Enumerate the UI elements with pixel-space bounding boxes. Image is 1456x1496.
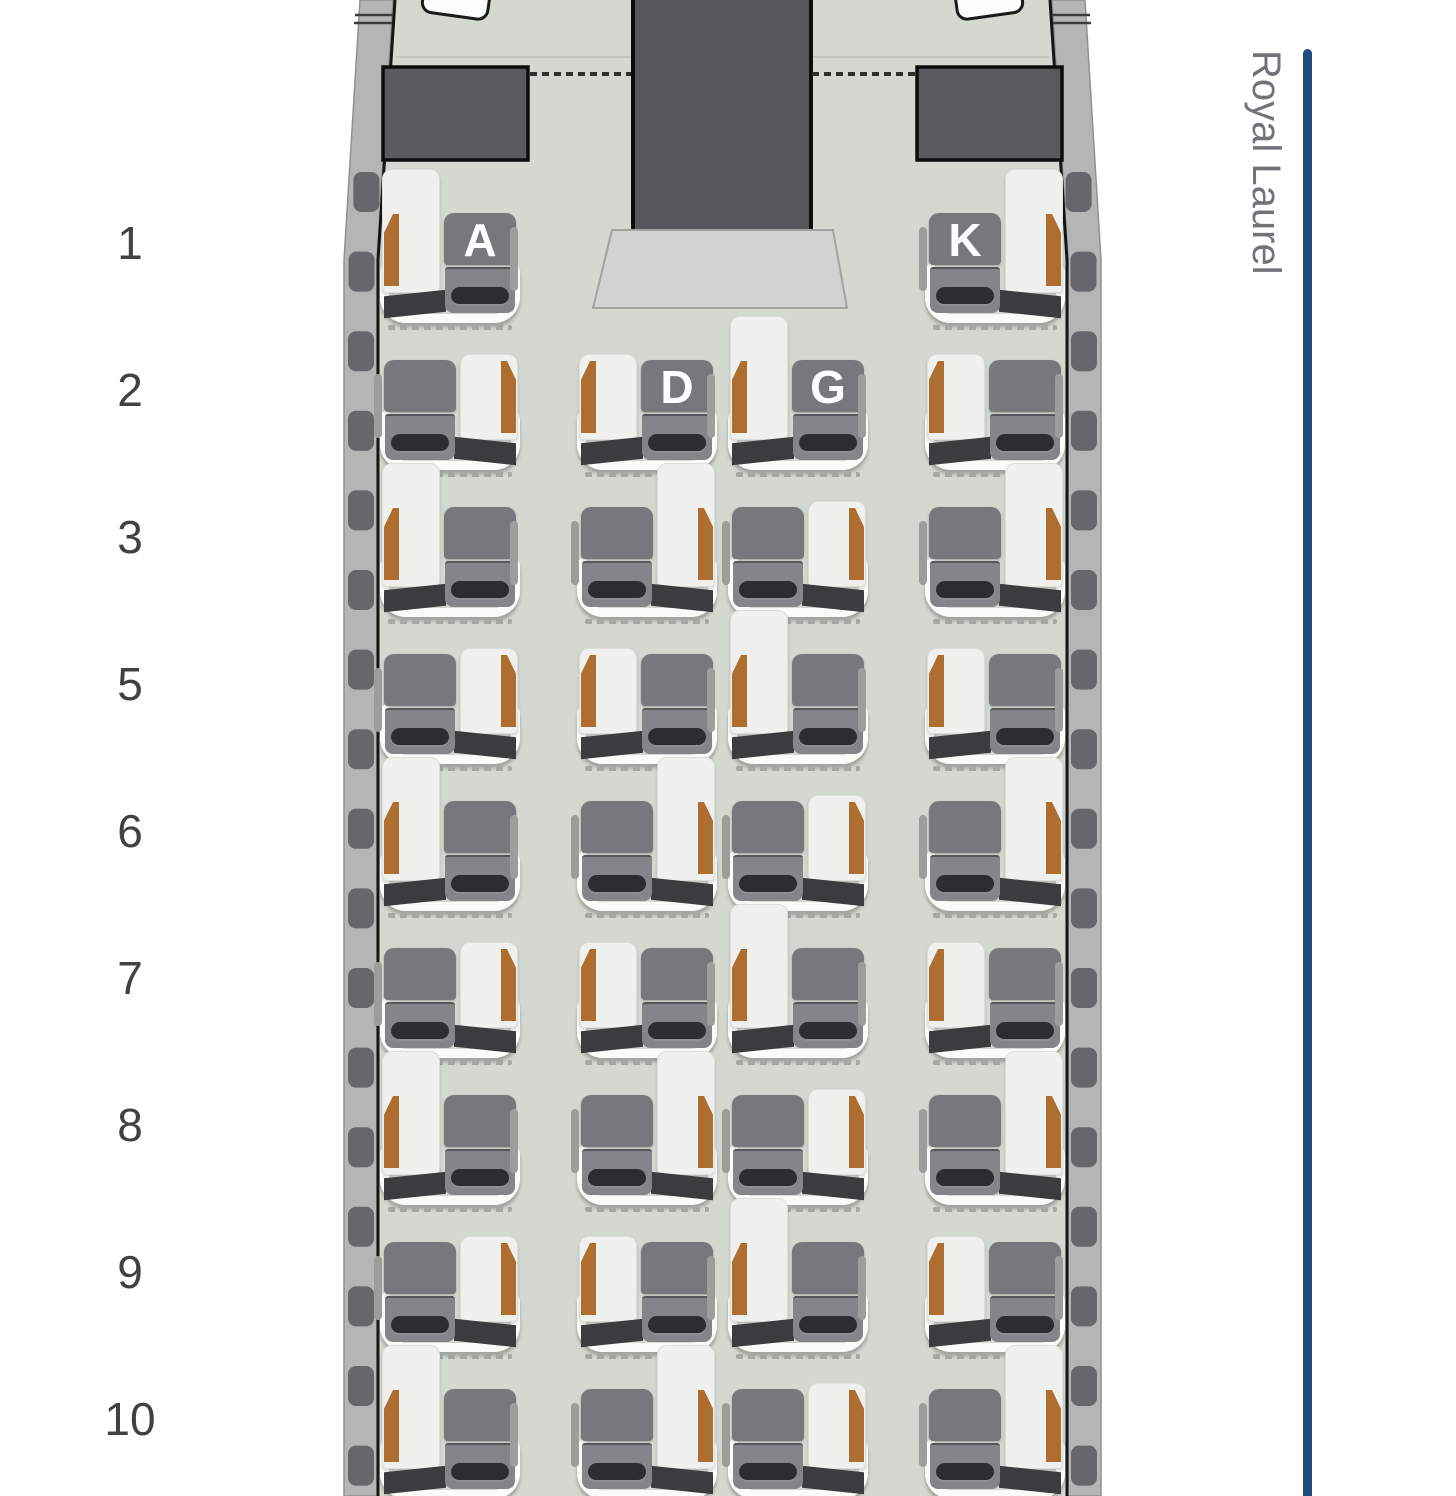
seat-9G xyxy=(728,1242,868,1392)
side-console xyxy=(460,1236,518,1322)
row-number-9: 9 xyxy=(70,1244,190,1300)
armrest-bar xyxy=(571,1403,579,1467)
seat-bolster xyxy=(391,1022,449,1039)
seat-2G[interactable]: G xyxy=(728,360,868,510)
seat-shell-tread xyxy=(933,325,1057,330)
seat-3D xyxy=(577,507,717,657)
side-console xyxy=(927,648,985,734)
armrest-bar xyxy=(1055,668,1063,732)
side-console xyxy=(579,354,637,440)
seat-bolster xyxy=(936,1463,994,1480)
cabin-class-label: Royal Laurel xyxy=(1242,50,1288,1350)
seat-headrest xyxy=(444,801,516,853)
seat-graphic xyxy=(581,1389,653,1489)
seat-bolster xyxy=(799,728,857,745)
side-console xyxy=(460,648,518,734)
console-accent xyxy=(732,655,747,727)
seat-headrest xyxy=(641,948,713,1000)
seat-graphic xyxy=(384,360,456,460)
seat-graphic: G xyxy=(792,360,864,460)
side-console xyxy=(382,1345,440,1469)
seat-bolster xyxy=(936,875,994,892)
seat-headrest xyxy=(732,1389,804,1441)
seat-bolster xyxy=(996,434,1054,451)
console-accent xyxy=(501,655,516,727)
console-accent xyxy=(698,1390,713,1462)
side-console xyxy=(657,463,715,587)
seat-5G xyxy=(728,654,868,804)
seat-headrest xyxy=(444,1389,516,1441)
seat-8D xyxy=(577,1095,717,1245)
seat-shell-tread xyxy=(933,913,1057,918)
side-console xyxy=(382,757,440,881)
seat-7G xyxy=(728,948,868,1098)
seat-graphic xyxy=(641,948,713,1048)
seat-graphic xyxy=(792,948,864,1048)
console-accent xyxy=(849,1390,864,1462)
seat-shell-tread xyxy=(585,1207,709,1212)
seat-bolster xyxy=(739,1463,797,1480)
seat-bolster xyxy=(451,1463,509,1480)
seat-bolster xyxy=(936,287,994,304)
seat-headrest xyxy=(384,360,456,412)
seat-bolster xyxy=(588,581,646,598)
seat-bolster xyxy=(588,875,646,892)
side-console xyxy=(808,1383,866,1469)
console-accent xyxy=(384,508,399,580)
side-console xyxy=(927,354,985,440)
seat-shell-tread xyxy=(388,1207,512,1212)
seat-graphic xyxy=(384,948,456,1048)
armrest-bar xyxy=(571,521,579,585)
armrest-bar xyxy=(707,962,715,1026)
side-console xyxy=(927,1236,985,1322)
seat-graphic xyxy=(989,360,1061,460)
seat-bolster xyxy=(799,434,857,451)
seat-shell-tread xyxy=(585,913,709,918)
seat-graphic: A xyxy=(444,213,516,313)
seat-1K[interactable]: K xyxy=(925,213,1065,363)
seat-bolster xyxy=(996,1022,1054,1039)
seat-bolster xyxy=(391,1316,449,1333)
row-number-8: 8 xyxy=(70,1097,190,1153)
console-accent xyxy=(929,655,944,727)
side-console xyxy=(1005,463,1063,587)
armrest-bar xyxy=(707,374,715,438)
seat-headrest xyxy=(989,948,1061,1000)
seat-shell-tread xyxy=(736,1354,860,1359)
armrest-bar xyxy=(722,521,730,585)
seat-graphic xyxy=(989,948,1061,1048)
seat-3K xyxy=(925,507,1065,657)
seat-bolster xyxy=(451,875,509,892)
seat-graphic xyxy=(581,1095,653,1195)
armrest-bar xyxy=(858,668,866,732)
armrest-bar xyxy=(374,668,382,732)
console-accent xyxy=(929,361,944,433)
seat-graphic xyxy=(792,654,864,754)
console-accent xyxy=(732,361,747,433)
console-accent xyxy=(698,802,713,874)
side-console xyxy=(808,1089,866,1175)
armrest-bar xyxy=(722,1403,730,1467)
seat-graphic xyxy=(929,1389,1001,1489)
seat-shell-tread xyxy=(585,619,709,624)
armrest-bar xyxy=(858,374,866,438)
seat-shell-tread xyxy=(388,619,512,624)
seat-letter: G xyxy=(792,361,864,413)
seat-shell-tread xyxy=(933,1207,1057,1212)
seat-bolster xyxy=(936,581,994,598)
console-accent xyxy=(698,1096,713,1168)
row-number-10: 10 xyxy=(70,1391,190,1447)
armrest-bar xyxy=(374,1256,382,1320)
armrest-bar xyxy=(707,1256,715,1320)
seat-headrest xyxy=(792,1242,864,1294)
seat-graphic xyxy=(929,801,1001,901)
seat-graphic xyxy=(792,1242,864,1342)
side-console xyxy=(579,1236,637,1322)
seat-graphic xyxy=(384,1242,456,1342)
side-console xyxy=(1005,1051,1063,1175)
seat-bolster xyxy=(799,1022,857,1039)
seat-headrest xyxy=(384,654,456,706)
console-accent xyxy=(581,1243,596,1315)
seat-bolster xyxy=(451,287,509,304)
armrest-bar xyxy=(919,1403,927,1467)
row-number-6: 6 xyxy=(70,803,190,859)
side-console xyxy=(927,942,985,1028)
side-console xyxy=(657,757,715,881)
row-number-3: 3 xyxy=(70,509,190,565)
seat-10D xyxy=(577,1389,717,1496)
side-console xyxy=(1005,169,1063,293)
row-number-2: 2 xyxy=(70,362,190,418)
seat-10G xyxy=(728,1389,868,1496)
seat-bolster xyxy=(648,434,706,451)
console-accent xyxy=(1046,214,1061,286)
seat-shell-tread xyxy=(388,913,512,918)
seat-letter: A xyxy=(444,214,516,266)
seat-bolster xyxy=(799,1316,857,1333)
seat-shell-tread xyxy=(388,325,512,330)
seat-graphic xyxy=(581,507,653,607)
side-console xyxy=(730,316,788,440)
seat-graphic xyxy=(732,1095,804,1195)
seat-bolster xyxy=(936,1169,994,1186)
armrest-bar xyxy=(919,521,927,585)
console-accent xyxy=(581,655,596,727)
cabin-class-rail xyxy=(1303,49,1312,1496)
seat-8A xyxy=(380,1095,520,1245)
seat-graphic xyxy=(581,801,653,901)
console-accent xyxy=(929,1243,944,1315)
side-console xyxy=(382,463,440,587)
console-accent xyxy=(1046,508,1061,580)
seat-graphic xyxy=(732,507,804,607)
seat-10A xyxy=(380,1389,520,1496)
seat-headrest xyxy=(384,948,456,1000)
seat-headrest xyxy=(581,1389,653,1441)
seat-bolster xyxy=(739,581,797,598)
seat-headrest xyxy=(581,1095,653,1147)
console-accent xyxy=(384,1390,399,1462)
side-console xyxy=(808,795,866,881)
armrest-bar xyxy=(374,374,382,438)
seat-bolster xyxy=(391,434,449,451)
armrest-bar xyxy=(510,1109,518,1173)
side-console xyxy=(730,610,788,734)
side-console xyxy=(460,942,518,1028)
side-console xyxy=(730,1198,788,1322)
armrest-bar xyxy=(571,1109,579,1173)
armrest-bar xyxy=(571,815,579,879)
seat-graphic xyxy=(444,801,516,901)
seat-bolster xyxy=(391,728,449,745)
console-accent xyxy=(849,802,864,874)
console-accent xyxy=(698,508,713,580)
seat-headrest xyxy=(732,1095,804,1147)
seat-bolster xyxy=(996,1316,1054,1333)
seat-shell-tread xyxy=(736,766,860,771)
seat-letter: K xyxy=(929,214,1001,266)
seat-headrest xyxy=(444,507,516,559)
seat-map-screen: 1AK2DG35678910 Royal Laurel xyxy=(0,0,1456,1496)
seat-graphic: D xyxy=(641,360,713,460)
console-accent xyxy=(929,949,944,1021)
seat-10K xyxy=(925,1389,1065,1496)
armrest-bar xyxy=(510,1403,518,1467)
seat-headrest xyxy=(929,507,1001,559)
side-console xyxy=(808,501,866,587)
seat-headrest xyxy=(581,507,653,559)
seat-shell-tread xyxy=(933,619,1057,624)
seat-shell-tread xyxy=(736,472,860,477)
row-number-1: 1 xyxy=(70,215,190,271)
armrest-bar xyxy=(1055,374,1063,438)
seat-bolster xyxy=(588,1463,646,1480)
seat-1A[interactable]: A xyxy=(380,213,520,363)
seat-headrest: G xyxy=(792,360,864,412)
seat-bolster xyxy=(648,1022,706,1039)
armrest-bar xyxy=(722,815,730,879)
console-accent xyxy=(384,1096,399,1168)
seat-graphic xyxy=(641,1242,713,1342)
armrest-bar xyxy=(919,1109,927,1173)
armrest-bar xyxy=(510,815,518,879)
seat-graphic xyxy=(732,801,804,901)
seat-graphic xyxy=(989,654,1061,754)
console-accent xyxy=(849,508,864,580)
seat-graphic xyxy=(444,1389,516,1489)
console-accent xyxy=(501,1243,516,1315)
seat-6D xyxy=(577,801,717,951)
seat-bolster xyxy=(648,1316,706,1333)
seat-headrest xyxy=(581,801,653,853)
side-console xyxy=(460,354,518,440)
seat-graphic xyxy=(444,507,516,607)
seat-grid: 1AK2DG35678910 xyxy=(0,0,1456,1496)
seat-headrest: D xyxy=(641,360,713,412)
armrest-bar xyxy=(374,962,382,1026)
seat-headrest xyxy=(989,654,1061,706)
seat-graphic xyxy=(641,654,713,754)
side-console xyxy=(579,942,637,1028)
console-accent xyxy=(1046,802,1061,874)
armrest-bar xyxy=(707,668,715,732)
seat-graphic xyxy=(989,1242,1061,1342)
seat-headrest: A xyxy=(444,213,516,265)
seat-bolster xyxy=(739,875,797,892)
console-accent xyxy=(1046,1390,1061,1462)
side-console xyxy=(382,169,440,293)
seat-letter: D xyxy=(641,361,713,413)
seat-graphic xyxy=(929,507,1001,607)
seat-headrest xyxy=(929,1095,1001,1147)
seat-headrest xyxy=(384,1242,456,1294)
seat-headrest xyxy=(444,1095,516,1147)
row-number-5: 5 xyxy=(70,656,190,712)
seat-headrest xyxy=(641,1242,713,1294)
seat-headrest xyxy=(732,507,804,559)
armrest-bar xyxy=(510,227,518,291)
seat-bolster xyxy=(588,1169,646,1186)
seat-headrest xyxy=(732,801,804,853)
armrest-bar xyxy=(858,962,866,1026)
console-accent xyxy=(732,949,747,1021)
side-console xyxy=(579,648,637,734)
armrest-bar xyxy=(510,521,518,585)
seat-bolster xyxy=(451,1169,509,1186)
console-accent xyxy=(581,361,596,433)
armrest-bar xyxy=(858,1256,866,1320)
seat-shell-tread xyxy=(736,1060,860,1065)
seat-graphic xyxy=(384,654,456,754)
armrest-bar xyxy=(1055,1256,1063,1320)
armrest-bar xyxy=(919,227,927,291)
seat-6K xyxy=(925,801,1065,951)
seat-bolster xyxy=(996,728,1054,745)
console-accent xyxy=(732,1243,747,1315)
seat-headrest xyxy=(929,1389,1001,1441)
console-accent xyxy=(384,214,399,286)
seat-graphic xyxy=(929,1095,1001,1195)
seat-graphic xyxy=(444,1095,516,1195)
console-accent xyxy=(384,802,399,874)
seat-graphic: K xyxy=(929,213,1001,313)
console-accent xyxy=(849,1096,864,1168)
side-console xyxy=(730,904,788,1028)
side-console xyxy=(1005,757,1063,881)
seat-headrest xyxy=(641,654,713,706)
seat-bolster xyxy=(739,1169,797,1186)
armrest-bar xyxy=(1055,962,1063,1026)
armrest-bar xyxy=(722,1109,730,1173)
armrest-bar xyxy=(919,815,927,879)
side-console xyxy=(657,1345,715,1469)
seat-bolster xyxy=(648,728,706,745)
seat-headrest xyxy=(989,1242,1061,1294)
side-console xyxy=(1005,1345,1063,1469)
seat-6A xyxy=(380,801,520,951)
console-accent xyxy=(1046,1096,1061,1168)
seat-headrest xyxy=(792,948,864,1000)
seat-8K xyxy=(925,1095,1065,1245)
side-console xyxy=(382,1051,440,1175)
side-console xyxy=(657,1051,715,1175)
console-accent xyxy=(501,361,516,433)
console-accent xyxy=(581,949,596,1021)
seat-graphic xyxy=(732,1389,804,1489)
seat-headrest xyxy=(989,360,1061,412)
seat-headrest: K xyxy=(929,213,1001,265)
seat-3A xyxy=(380,507,520,657)
seat-headrest xyxy=(929,801,1001,853)
seat-headrest xyxy=(792,654,864,706)
seat-bolster xyxy=(451,581,509,598)
row-number-7: 7 xyxy=(70,950,190,1006)
console-accent xyxy=(501,949,516,1021)
